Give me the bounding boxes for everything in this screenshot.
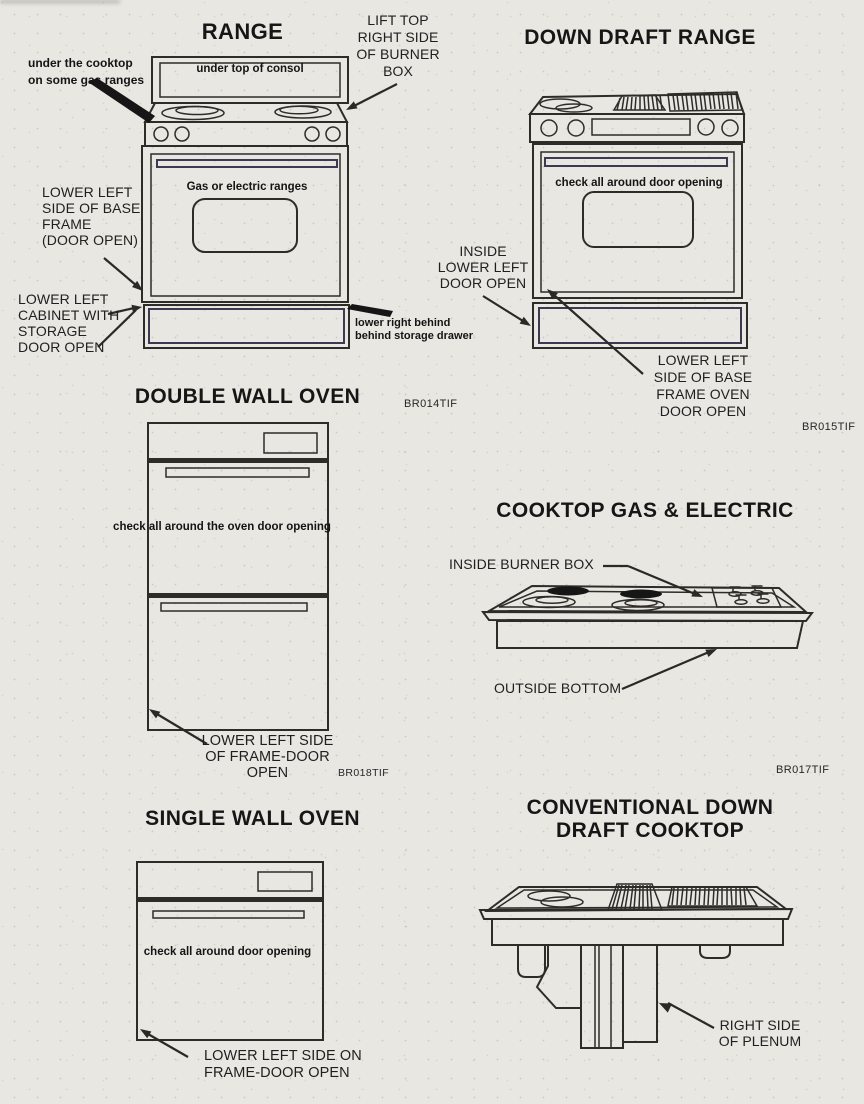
label-right-side-plenum: RIGHT SIDE OF PLENUM xyxy=(714,1017,806,1049)
figure-code-br015: BR015TIF xyxy=(802,421,855,433)
arrow-lower-left-base xyxy=(104,258,137,286)
label-inside-lower-left: INSIDE LOWER LEFT DOOR OPEN xyxy=(433,243,533,291)
ddr-storage-drawer xyxy=(533,303,747,348)
line-art xyxy=(0,0,864,1104)
swo-handle xyxy=(153,911,304,918)
cooktop-gas-electric-drawing xyxy=(483,566,812,689)
arrowhead xyxy=(659,1003,672,1013)
range-door-handle xyxy=(157,160,337,167)
figure-code-br014: BR014TIF xyxy=(404,398,457,410)
single-wall-oven-drawing xyxy=(137,862,323,1057)
label-dwo-door-text: check all around the oven door opening xyxy=(112,521,332,534)
label-lower-right-behind: lower right behind behind storage drawer xyxy=(355,317,485,343)
dwo-panel-divider xyxy=(148,458,328,463)
ddr-knob xyxy=(698,119,714,135)
arrow-lift-top xyxy=(352,84,397,107)
cge-body xyxy=(497,621,803,648)
cddc-right-tab xyxy=(700,945,730,958)
range-storage-drawer-inner xyxy=(149,309,344,343)
swo-display xyxy=(258,872,312,891)
scribble-mark xyxy=(347,304,393,317)
figure-code-br018: BR018TIF xyxy=(338,767,389,779)
cddc-vent-hatch xyxy=(612,885,652,909)
ddr-oven-body xyxy=(533,144,742,298)
arrow-outside-bottom xyxy=(622,652,709,689)
label-ddr-door-text: check all around door opening xyxy=(553,177,725,190)
cge-rim xyxy=(483,612,812,621)
ddr-door-handle xyxy=(545,158,727,166)
label-swo-lower-left: LOWER LEFT SIDE ON FRAME-DOOR OPEN xyxy=(204,1048,374,1082)
arrowhead xyxy=(149,709,160,718)
arrow-base-frame xyxy=(554,295,643,374)
figure-code-br017: BR017TIF xyxy=(776,764,829,776)
label-swo-door-text: check all around door opening xyxy=(140,946,315,959)
arrowhead xyxy=(140,1029,151,1038)
double-wall-oven-drawing xyxy=(148,423,328,744)
cddc-mid-duct xyxy=(537,945,581,1008)
ddr-storage-drawer-inner xyxy=(539,308,741,343)
cddc-rim xyxy=(480,909,792,919)
range-oven-body xyxy=(142,146,348,302)
range-knob xyxy=(154,127,168,141)
ddr-vent-hatch xyxy=(617,95,662,110)
scanned-diagram-page: RANGE LIFT TOP RIGHT SIDE OF BURNER BOX … xyxy=(0,0,864,1104)
cge-burner xyxy=(620,590,662,599)
label-under-cooktop: under the cooktop on some gas ranges xyxy=(28,55,173,89)
figure-title-conventional-down-draft: CONVENTIONAL DOWN DRAFT COOKTOP xyxy=(505,796,795,842)
range-knob xyxy=(326,127,340,141)
cddc-duct-lines xyxy=(595,945,611,1048)
range-knob xyxy=(175,127,189,141)
cge-burner xyxy=(547,587,589,596)
ddr-display xyxy=(592,119,690,135)
figure-title-double-wall-oven: DOUBLE WALL OVEN xyxy=(125,385,370,408)
range-oven-door xyxy=(151,154,340,296)
range-cooktop-surface xyxy=(145,103,347,122)
label-lower-left-cabinet: LOWER LEFT CABINET WITH STORAGE DOOR OPE… xyxy=(18,291,136,355)
arrow-plenum xyxy=(668,1003,714,1028)
arrow-inside-lower-left xyxy=(483,296,523,321)
label-outside-bottom: OUTSIDE BOTTOM xyxy=(494,680,634,696)
label-range-door-text: Gas or electric ranges xyxy=(157,181,337,194)
ddr-knob xyxy=(541,120,557,136)
range-burner-right-inner xyxy=(280,106,318,114)
range-knob xyxy=(305,127,319,141)
label-lift-top: LIFT TOP RIGHT SIDE OF BURNER BOX xyxy=(352,12,444,80)
dwo-upper-handle xyxy=(166,468,309,477)
figure-title-range: RANGE xyxy=(150,20,335,43)
arrowhead xyxy=(705,649,717,657)
range-storage-drawer xyxy=(144,305,349,348)
dwo-display xyxy=(264,433,317,453)
ddr-control-panel xyxy=(530,114,744,142)
label-lower-left-base: LOWER LEFT SIDE OF BASE FRAME (DOOR OPEN… xyxy=(42,184,154,248)
ddr-knob xyxy=(568,120,584,136)
dwo-lower-handle xyxy=(161,603,307,611)
cddc-support-box xyxy=(492,919,783,945)
cddc-burner xyxy=(528,891,570,901)
cge-burner-box xyxy=(712,588,781,607)
ddr-door-window xyxy=(583,192,693,247)
range-door-window xyxy=(193,199,297,252)
label-dwo-lower-left: LOWER LEFT SIDE OF FRAME-DOOR OPEN xyxy=(200,733,335,781)
cge-burner-inner xyxy=(536,597,568,603)
cddc-left-tab xyxy=(518,945,545,977)
cddc-center-duct xyxy=(581,945,623,1048)
ddr-knob xyxy=(722,120,738,136)
figure-title-down-draft-range: DOWN DRAFT RANGE xyxy=(515,26,765,49)
arrowhead xyxy=(520,317,531,326)
dwo-door-divider xyxy=(148,593,328,598)
label-ddr-lower-left-base: LOWER LEFT SIDE OF BASE FRAME OVEN DOOR … xyxy=(648,352,758,420)
swo-panel-divider xyxy=(137,897,323,902)
figure-title-single-wall-oven: SINGLE WALL OVEN xyxy=(130,807,375,830)
cddc-burner xyxy=(541,897,583,907)
label-inside-burner-box: INSIDE BURNER BOX xyxy=(449,556,619,572)
arrow-swo-lower-left xyxy=(148,1034,188,1057)
figure-title-cooktop-gas-electric: COOKTOP GAS & ELECTRIC xyxy=(480,499,810,522)
cddc-plenum xyxy=(623,945,657,1042)
range-burner-left-inner xyxy=(176,107,218,115)
label-console-text: under top of consol xyxy=(162,63,338,76)
ddr-oven-door xyxy=(541,152,734,292)
dwo-body xyxy=(148,423,328,730)
cge-burner-inner xyxy=(625,600,657,606)
down-draft-range-drawing xyxy=(483,92,747,374)
